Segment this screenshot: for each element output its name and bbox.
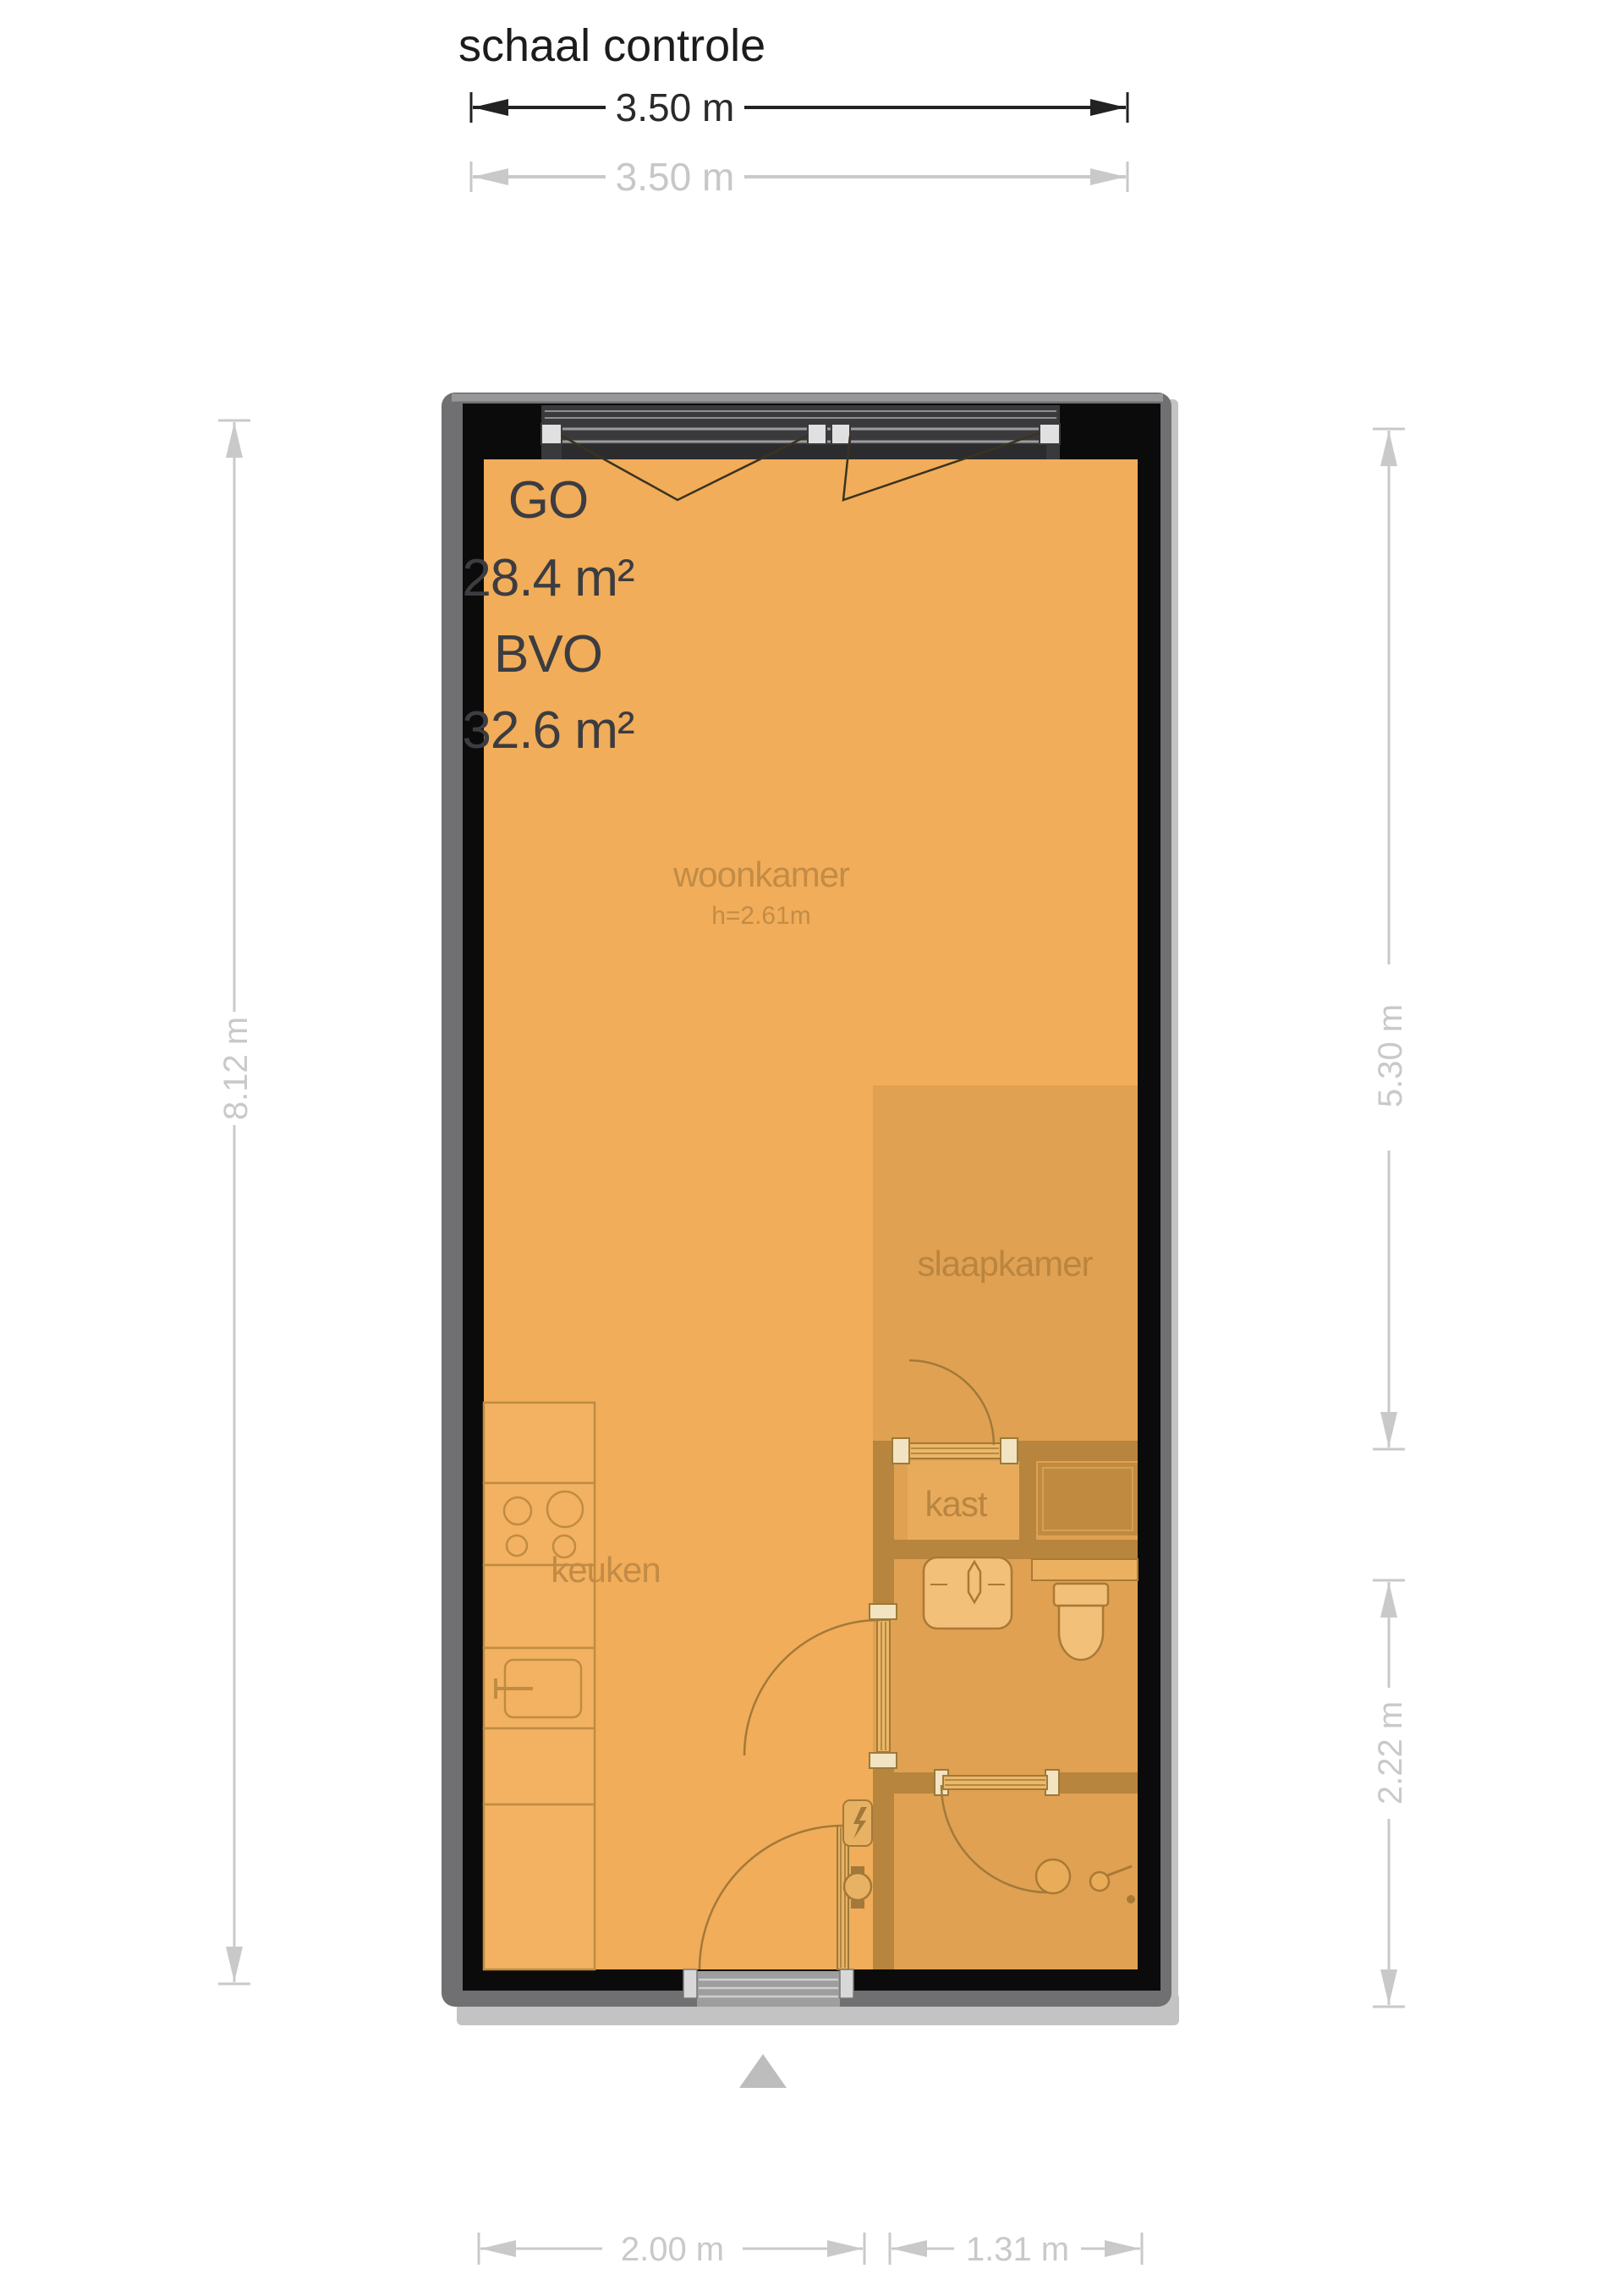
bvo-label: BVO <box>494 625 602 684</box>
shower-drain-icon <box>1036 1859 1070 1893</box>
door-jamb <box>1001 1438 1018 1464</box>
dim-value-left: 8.12 m <box>217 1017 255 1120</box>
kitchen-block <box>484 1403 595 1969</box>
entrance-jamb <box>683 1969 697 1998</box>
page-title: schaal controle <box>458 20 765 71</box>
entrance-jamb <box>840 1969 853 1998</box>
bvo-value: 32.6 m² <box>462 701 634 760</box>
interior-wall <box>1004 1441 1138 1461</box>
interior-wall <box>1019 1461 1036 1540</box>
window-mullion <box>808 424 826 444</box>
window-jamb <box>541 424 562 444</box>
interior-wall <box>1049 1772 1138 1793</box>
window-jamb <box>1040 424 1060 444</box>
toilet-tank <box>1054 1584 1108 1606</box>
counter-segment <box>484 1403 595 1483</box>
dim-value-right-lower: 2.22 m <box>1372 1701 1409 1804</box>
window-mullion <box>831 424 850 444</box>
door-jamb <box>892 1438 909 1464</box>
ceiling-height-label: h=2.61m <box>711 902 811 930</box>
scale-value-primary: 3.50 m <box>616 85 735 129</box>
water-meter-cap <box>851 1900 864 1909</box>
bathroom-shelf <box>1032 1559 1138 1580</box>
interior-wall <box>873 1754 894 1969</box>
dim-value-bottom-right: 1.31 m <box>966 2231 1069 2268</box>
door-jamb <box>870 1604 897 1619</box>
dim-value-bottom-left: 2.00 m <box>621 2231 724 2268</box>
room-label-kast: kast <box>924 1484 987 1524</box>
toilet-icon <box>1059 1606 1103 1660</box>
go-label: GO <box>508 471 588 530</box>
door-jamb <box>870 1753 897 1768</box>
cabinet-panel <box>1038 1463 1138 1535</box>
counter-segment <box>484 1804 595 1969</box>
shower-drop <box>1127 1895 1135 1903</box>
dim-value-right-upper: 5.30 m <box>1372 1004 1409 1107</box>
interior-wall <box>873 1441 894 1618</box>
entrance-door-leaf <box>837 1826 848 1969</box>
floorplan-page: schaal controle 3.50 m 3.50 m <box>0 0 1624 2296</box>
window-glass <box>562 444 1046 459</box>
washbasin-icon <box>924 1557 1012 1629</box>
bathroom-door-leaf <box>877 1620 890 1752</box>
room-label-slaapkamer: slaapkamer <box>917 1244 1093 1283</box>
water-meter-icon <box>844 1873 871 1900</box>
room-label-keuken: keuken <box>551 1550 660 1590</box>
entrance-opening <box>683 1969 853 2007</box>
closet-door-leaf <box>909 1443 1001 1458</box>
floorplan-canvas: schaal controle 3.50 m 3.50 m <box>0 0 1624 2296</box>
shower-door-leaf <box>943 1776 1047 1789</box>
scale-value-secondary: 3.50 m <box>616 155 735 199</box>
counter-segment <box>484 1728 595 1804</box>
room-label-woonkamer: woonkamer <box>672 854 850 894</box>
shower-head-icon <box>1090 1872 1109 1891</box>
interior-wall <box>873 1540 1138 1559</box>
go-value: 28.4 m² <box>462 549 634 607</box>
